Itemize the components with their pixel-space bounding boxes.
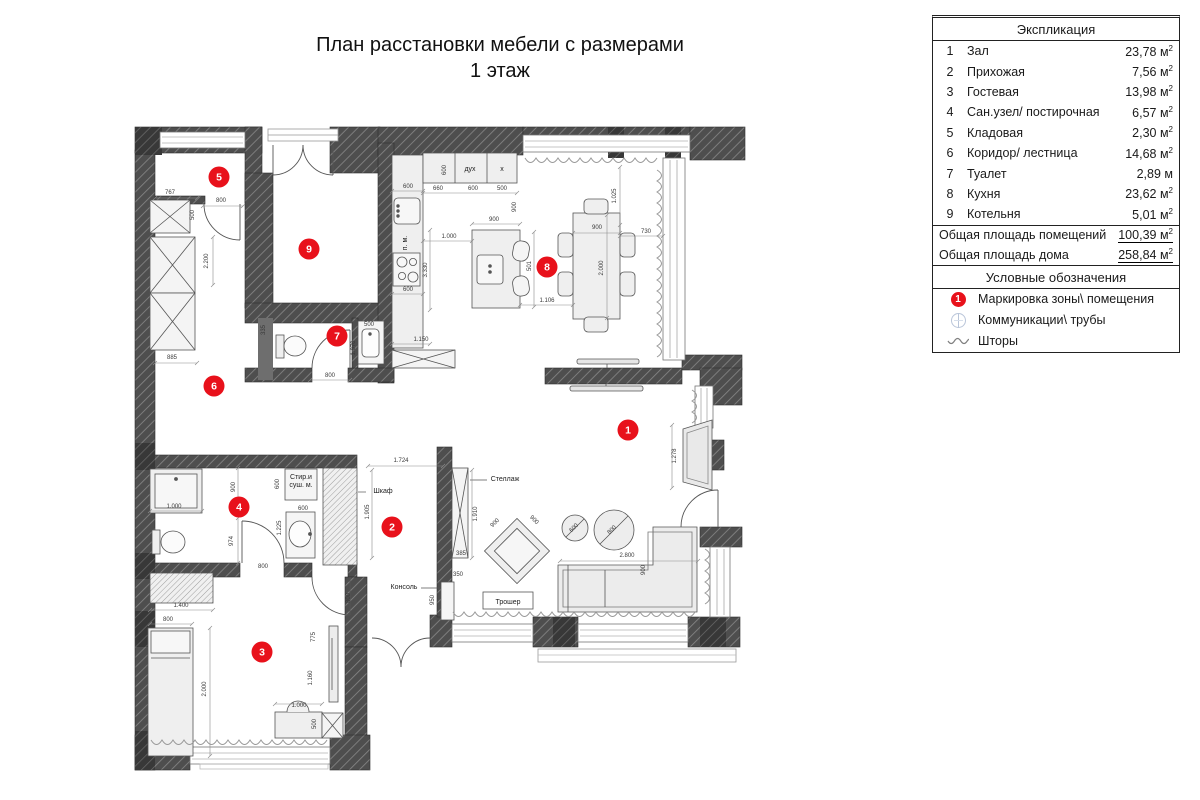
table-row: 2Прихожая7,56 м2 — [933, 61, 1179, 81]
entrance-door-arc — [372, 638, 401, 667]
dimension-label: 1.160 — [308, 670, 314, 686]
zone-marker: 8 — [537, 257, 558, 278]
window-kitchen-top — [523, 135, 690, 152]
dimension-label: 1.070 — [351, 340, 357, 356]
table-row: 1Зал23,78 м2 — [933, 41, 1179, 61]
plan-label: суш. м. — [289, 482, 312, 489]
room-name: Котельня — [967, 207, 1132, 221]
dimension-label: 767 — [165, 190, 176, 196]
dimension-label: 950 — [430, 594, 436, 605]
dimension-label: 900 — [592, 225, 603, 231]
dining-chair — [584, 199, 608, 214]
toilet-room4 — [161, 531, 185, 553]
room-name: Сан.узел/ постирочная — [967, 105, 1132, 119]
window-kitchen-right — [663, 158, 685, 360]
legend-item-label: Маркировка зоны\ помещения — [978, 292, 1154, 306]
dimension-label: 2.000 — [202, 681, 208, 697]
zone-marker: 7 — [327, 326, 348, 347]
table-row: 6Коридор/ лестница14,68 м2 — [933, 143, 1179, 163]
room-name: Зал — [967, 44, 1125, 58]
legend-item-label: Шторы — [978, 334, 1018, 348]
dimension-label: 1.724 — [393, 458, 409, 464]
dimension-label: 1.000 — [166, 504, 182, 510]
total-label: Общая площадь дома — [939, 248, 1118, 262]
plan-label: Стир.и — [290, 474, 312, 481]
terrace-band — [538, 649, 736, 662]
room-number: 8 — [933, 187, 967, 201]
room-name: Гостевая — [967, 85, 1125, 99]
dimension-label: 1.905 — [365, 504, 371, 520]
dimension-label: 2.200 — [204, 253, 210, 269]
table-row: 9Котельня5,01 м2 — [933, 204, 1179, 224]
dimension-label: 600 — [468, 186, 479, 192]
room-name: Кладовая — [967, 126, 1132, 140]
wall-below-door — [700, 527, 742, 547]
zone-number: 2 — [389, 522, 395, 534]
dining-chair — [558, 233, 573, 257]
plan-label: п. м. — [402, 236, 409, 250]
room-area: 2,89 м — [1137, 167, 1173, 181]
plan-label: х — [500, 166, 504, 173]
dimension-label: 385 — [456, 551, 467, 557]
dimension-label: 800 — [216, 198, 227, 204]
dimension-label: 500 — [312, 718, 318, 729]
dimension-label: 501 — [527, 260, 533, 271]
table-row: 4Сан.узел/ постирочная6,57 м2 — [933, 102, 1179, 122]
room-area: 23,78 м2 — [1125, 44, 1173, 59]
floor-plan-page: { "title": {"line1": "План расстановки м… — [0, 0, 1200, 800]
zone-number: 1 — [625, 425, 631, 437]
door-arc — [312, 577, 350, 615]
tv-unit-room3 — [329, 626, 338, 702]
room-area: 2,30 м2 — [1132, 125, 1173, 140]
curtains-icon — [947, 336, 969, 346]
door-arc — [204, 204, 240, 240]
explication-panel: Экспликация 1Зал23,78 м22Прихожая7,56 м2… — [932, 15, 1180, 353]
dimension-label: 1.400 — [173, 603, 189, 609]
plan-label: Трошер — [495, 599, 520, 606]
dimension-label: 2.000 — [599, 260, 605, 276]
room-name: Кухня — [967, 187, 1125, 201]
explication-totals: Общая площадь помещений100,39 м2Общая пл… — [933, 225, 1179, 265]
explication-header: Экспликация — [933, 18, 1179, 41]
pier — [700, 617, 726, 647]
legend-rows: 1Маркировка зоны\ помещенияКоммуникации\… — [933, 289, 1179, 352]
zone-number: 7 — [334, 331, 340, 343]
dimension-label: 600 — [298, 506, 309, 512]
zone-number: 4 — [236, 502, 242, 514]
dimension-label: 900 — [641, 564, 647, 575]
dimension-label: 974 — [229, 535, 235, 546]
dimension-label: 660 — [433, 186, 444, 192]
dimension-label: 800 — [346, 592, 352, 603]
plan-label: Консоль — [391, 584, 418, 591]
plan-label: Стеллаж — [491, 476, 520, 483]
sill-band — [200, 764, 328, 769]
wall-entrance-left — [345, 577, 367, 647]
dining-chair — [620, 272, 635, 296]
page-title: План расстановки мебели с размерами 1 эт… — [260, 32, 740, 84]
total-value: 258,84 м2 — [1118, 247, 1173, 263]
dimension-label: 730 — [641, 229, 652, 235]
dimension-label: 800 — [325, 373, 336, 379]
wall-corner-top-right — [690, 127, 745, 160]
table-row: 3Гостевая13,98 м2 — [933, 82, 1179, 102]
plan-label: Шкаф — [373, 488, 393, 495]
wall-room4-top — [147, 455, 357, 468]
dimension-label: 1.225 — [277, 520, 283, 536]
room-area: 5,01 м2 — [1132, 207, 1173, 222]
pipes-icon — [951, 313, 966, 328]
zone-number: 8 — [544, 262, 550, 274]
page-title-line1: План расстановки мебели с размерами — [260, 32, 740, 58]
zone-number: 5 — [216, 172, 222, 184]
dimension-label: 885 — [167, 355, 178, 361]
zone-marker: 3 — [252, 642, 273, 663]
tv-hall-side — [570, 386, 643, 391]
zone-marker: 6 — [204, 376, 225, 397]
wall-room9-left — [245, 173, 273, 308]
room-number: 9 — [933, 207, 967, 221]
total-row: Общая площадь помещений100,39 м2 — [933, 226, 1179, 246]
dimension-label: 1.025 — [612, 188, 618, 204]
room-name: Туалет — [967, 167, 1137, 181]
dimension-label: 800 — [163, 617, 174, 623]
curtain-wave — [453, 612, 695, 617]
window-right-lower — [710, 547, 730, 617]
dimension-label: 900 — [490, 517, 502, 529]
pier — [553, 617, 575, 647]
toilet-tank — [152, 530, 160, 554]
dimension-label: 900 — [489, 217, 500, 223]
room-name: Коридор/ лестница — [967, 146, 1125, 160]
dimension-label: 350 — [453, 572, 464, 578]
total-label: Общая площадь помещений — [939, 228, 1118, 242]
dimension-label: 600 — [403, 287, 414, 293]
room-number: 3 — [933, 85, 967, 99]
room-area: 13,98 м2 — [1125, 84, 1173, 99]
dimension-label: 900 — [231, 481, 237, 492]
bed-pillow — [151, 631, 190, 653]
dimension-label: 1.000 — [291, 703, 307, 709]
total-row: Общая площадь дома258,84 м2 — [933, 245, 1179, 265]
console-table — [441, 582, 454, 620]
zone-marker: 2 — [382, 517, 403, 538]
zone-marker: 5 — [209, 167, 230, 188]
dimension-label: 1.150 — [413, 337, 429, 343]
legend-item: Коммуникации\ трубы — [933, 310, 1179, 331]
room-area: 7,56 м2 — [1132, 64, 1173, 79]
curtain-wave — [705, 549, 710, 604]
table-row: 8Кухня23,62 м2 — [933, 184, 1179, 204]
wall-toilet-bottom-left — [245, 368, 312, 382]
dimension-label: 335 — [261, 324, 267, 335]
dimension-label: 1.000 — [441, 234, 457, 240]
room-area: 23,62 м2 — [1125, 186, 1173, 201]
dimension-label: 600 — [442, 164, 448, 175]
total-value: 100,39 м2 — [1118, 227, 1173, 243]
dimension-label: 1.106 — [539, 298, 555, 304]
stove-icon — [393, 253, 420, 286]
dining-chair — [558, 272, 573, 296]
dimension-label: 900 — [528, 515, 540, 527]
room-number: 7 — [933, 167, 967, 181]
entrance-door-arc — [401, 638, 430, 667]
room-name: Прихожая — [967, 65, 1132, 79]
window-bottom-left — [452, 624, 533, 642]
dimension-label: 600 — [403, 184, 414, 190]
walls — [135, 127, 745, 770]
dimension-label: 500 — [190, 209, 196, 220]
explication-rows: 1Зал23,78 м22Прихожая7,56 м23Гостевая13,… — [933, 41, 1179, 225]
zone-marker-icon: 1 — [951, 292, 966, 307]
zone-marker: 9 — [299, 239, 320, 260]
dining-chair — [584, 317, 608, 332]
room-number: 6 — [933, 146, 967, 160]
wall-kitchen-window-head — [523, 127, 690, 135]
zone-number: 9 — [306, 244, 312, 256]
window-room5 — [160, 132, 245, 148]
wall-tv-partition — [545, 368, 682, 384]
dimension-label: 1.278 — [672, 448, 678, 464]
curtain-wave — [525, 158, 657, 163]
room-number: 2 — [933, 65, 967, 79]
window-room3 — [190, 747, 330, 764]
room-number: 5 — [933, 126, 967, 140]
plan-label: дух — [464, 166, 476, 173]
room-area: 6,57 м2 — [1132, 105, 1173, 120]
dimension-label: 775 — [311, 631, 317, 642]
dimension-label: 600 — [275, 478, 281, 489]
tv-kitchen-side — [577, 359, 639, 364]
dining-chair — [620, 233, 635, 257]
wardrobe-room2 — [323, 468, 357, 565]
curtain-wave — [657, 170, 662, 357]
table-row: 5Кладовая2,30 м2 — [933, 123, 1179, 143]
window-bottom-right — [578, 624, 688, 642]
wall-piers — [135, 127, 726, 770]
dimension-label: 2.800 — [619, 553, 635, 559]
legend-item: 1Маркировка зоны\ помещения — [933, 289, 1179, 310]
wardrobe-room3 — [150, 573, 213, 603]
dimension-label: 1.910 — [473, 506, 479, 522]
wall-room3-right — [345, 647, 367, 742]
room-number: 4 — [933, 105, 967, 119]
pier — [135, 127, 162, 155]
page-title-line2: 1 этаж — [260, 58, 740, 84]
dimension-label: 500 — [364, 322, 375, 328]
legend-header: Условные обозначения — [933, 265, 1179, 289]
dimension-label: 900 — [512, 201, 518, 212]
zone-marker: 1 — [618, 420, 639, 441]
table-row: 7Туалет2,89 м — [933, 163, 1179, 183]
zone-marker: 4 — [229, 497, 250, 518]
island-cooktop — [477, 255, 503, 284]
pier — [135, 443, 155, 470]
wall-kitchen-top — [378, 127, 523, 155]
wall-toilet-bottom-right — [348, 368, 394, 382]
room-area: 14,68 м2 — [1125, 146, 1173, 161]
zone-number: 3 — [259, 647, 265, 659]
door-arc — [681, 490, 718, 527]
toilet-room7 — [284, 336, 306, 356]
room-number: 1 — [933, 44, 967, 58]
toilet-tank-7 — [276, 335, 284, 358]
legend-item-label: Коммуникации\ трубы — [978, 313, 1106, 327]
wall-room3-top-mid — [284, 563, 312, 577]
dimension-label: 500 — [497, 186, 508, 192]
wall-room3-bottom-right — [330, 735, 370, 770]
door-arc — [273, 145, 303, 175]
door-arc — [303, 145, 333, 175]
dimension-label: 3.330 — [423, 262, 429, 278]
zone-number: 6 — [211, 381, 217, 393]
legend-item: Шторы — [933, 331, 1179, 352]
dimension-label: 800 — [258, 564, 269, 570]
